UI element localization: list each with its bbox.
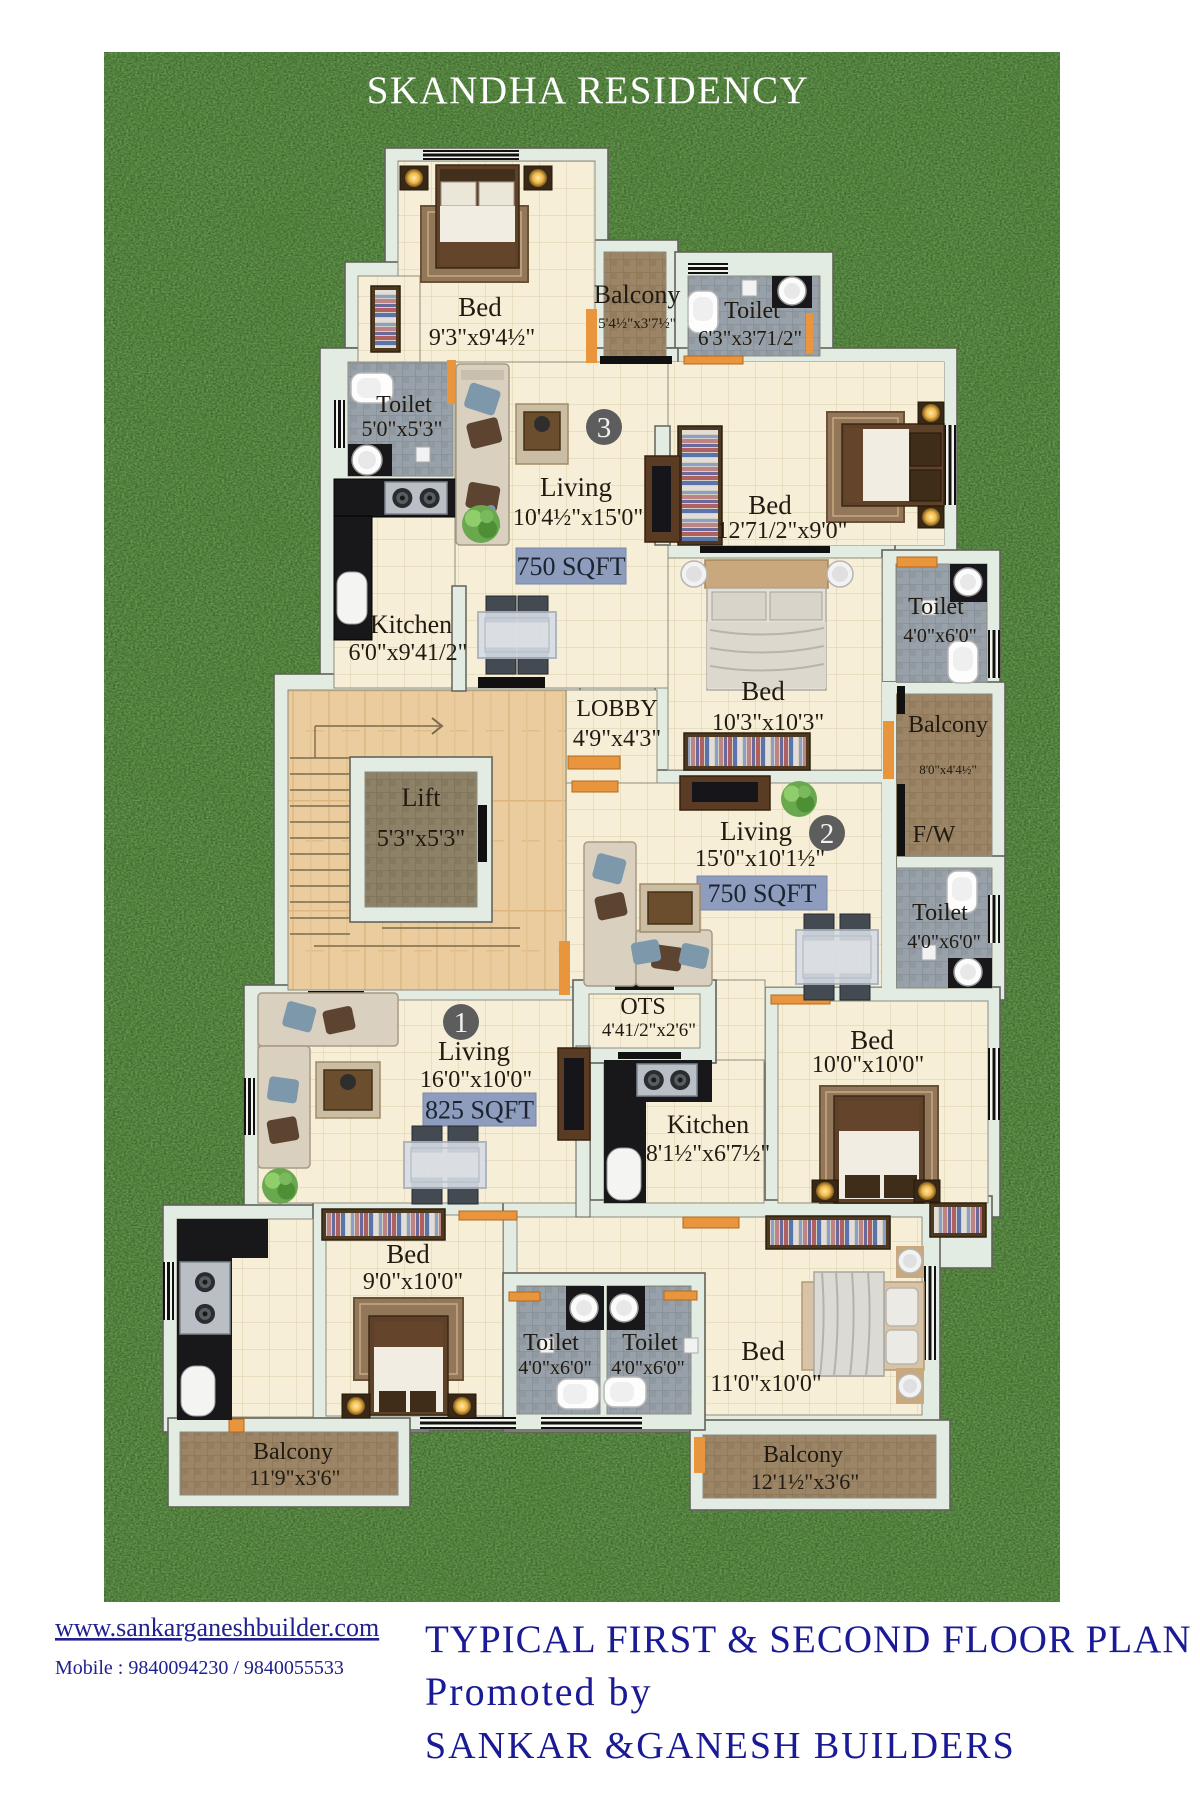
svg-text:4'41/2"x2'6": 4'41/2"x2'6" [602, 1020, 696, 1041]
svg-text:Toilet: Toilet [376, 392, 432, 418]
svg-text:8'0"x4'4½": 8'0"x4'4½" [919, 762, 977, 777]
svg-text:16'0"x10'0": 16'0"x10'0" [420, 1067, 532, 1093]
svg-text:11'0"x10'0": 11'0"x10'0" [710, 1371, 821, 1397]
svg-text:F/W: F/W [913, 822, 956, 848]
svg-text:4'9"x4'3": 4'9"x4'3" [573, 726, 661, 752]
svg-text:Toilet: Toilet [908, 594, 964, 620]
svg-text:825 SQFT: 825 SQFT [425, 1096, 534, 1125]
svg-text:LOBBY: LOBBY [576, 696, 657, 722]
svg-text:8'1½"x6'7½": 8'1½"x6'7½" [646, 1141, 770, 1167]
svg-text:10'3"x10'3": 10'3"x10'3" [712, 710, 824, 736]
svg-text:1: 1 [454, 1007, 469, 1039]
svg-text:Toilet: Toilet [523, 1330, 579, 1356]
svg-text:5'0"x5'3": 5'0"x5'3" [362, 416, 443, 441]
svg-text:4'0"x6'0": 4'0"x6'0" [903, 625, 977, 647]
svg-text:Living: Living [720, 816, 792, 846]
svg-text:11'9"x3'6": 11'9"x3'6" [249, 1465, 340, 1490]
svg-text:750 SQFT: 750 SQFT [516, 552, 625, 581]
svg-text:4'0"x6'0": 4'0"x6'0" [907, 931, 981, 953]
svg-text:Balcony: Balcony [763, 1442, 843, 1468]
svg-text:6'0"x9'41/2": 6'0"x9'41/2" [349, 640, 468, 666]
svg-text:6'3"x3'71/2": 6'3"x3'71/2" [698, 326, 802, 350]
svg-text:www.sankarganeshbuilder.com: www.sankarganeshbuilder.com [55, 1613, 379, 1642]
svg-text:Bed: Bed [748, 490, 792, 520]
svg-text:Mobile : 9840094230 / 9840055: Mobile : 9840094230 / 9840055533 [55, 1657, 344, 1679]
svg-text:4'0"x6'0": 4'0"x6'0" [518, 1357, 592, 1379]
svg-text:5'3"x5'3": 5'3"x5'3" [377, 826, 465, 852]
svg-text:9'3"x9'4½": 9'3"x9'4½" [429, 325, 535, 351]
svg-text:Kitchen: Kitchen [370, 610, 452, 639]
svg-text:12'1½"x3'6": 12'1½"x3'6" [751, 1469, 859, 1494]
svg-text:Living: Living [438, 1036, 510, 1066]
svg-text:Bed: Bed [386, 1239, 430, 1269]
svg-text:Bed: Bed [850, 1025, 894, 1055]
svg-text:Toilet: Toilet [622, 1330, 678, 1356]
svg-text:10'0"x10'0": 10'0"x10'0" [812, 1052, 924, 1078]
svg-text:Promoted by: Promoted by [425, 1669, 653, 1714]
svg-text:OTS: OTS [620, 994, 665, 1020]
svg-text:SANKAR &GANESH BUILDERS: SANKAR &GANESH BUILDERS [425, 1725, 1016, 1767]
svg-text:Balcony: Balcony [253, 1439, 333, 1465]
svg-text:4'0"x6'0": 4'0"x6'0" [611, 1357, 685, 1379]
svg-text:Balcony: Balcony [908, 712, 988, 738]
svg-text:750 SQFT: 750 SQFT [707, 879, 816, 908]
svg-text:10'4½"x15'0": 10'4½"x15'0" [513, 505, 643, 531]
svg-text:12'71/2"x9'0": 12'71/2"x9'0" [717, 518, 848, 544]
svg-text:Bed: Bed [458, 292, 502, 322]
svg-text:Lift: Lift [402, 783, 442, 812]
svg-text:5'4½"x3'7½": 5'4½"x3'7½" [598, 316, 676, 332]
svg-text:9'0"x10'0": 9'0"x10'0" [363, 1269, 463, 1295]
svg-text:Bed: Bed [741, 1336, 785, 1366]
svg-text:Balcony: Balcony [594, 280, 681, 309]
svg-text:3: 3 [597, 412, 612, 444]
svg-text:15'0"x10'1½": 15'0"x10'1½" [695, 846, 825, 872]
svg-text:Kitchen: Kitchen [667, 1110, 749, 1139]
svg-text:Living: Living [540, 472, 612, 502]
svg-text:SKANDHA RESIDENCY: SKANDHA RESIDENCY [367, 69, 810, 112]
svg-text:Toilet: Toilet [724, 298, 780, 324]
svg-text:Toilet: Toilet [912, 900, 968, 926]
svg-text:TYPICAL FIRST & SECOND FLOOR: TYPICAL FIRST & SECOND FLOOR PLAN [425, 1618, 1192, 1661]
svg-text:Bed: Bed [741, 676, 785, 706]
